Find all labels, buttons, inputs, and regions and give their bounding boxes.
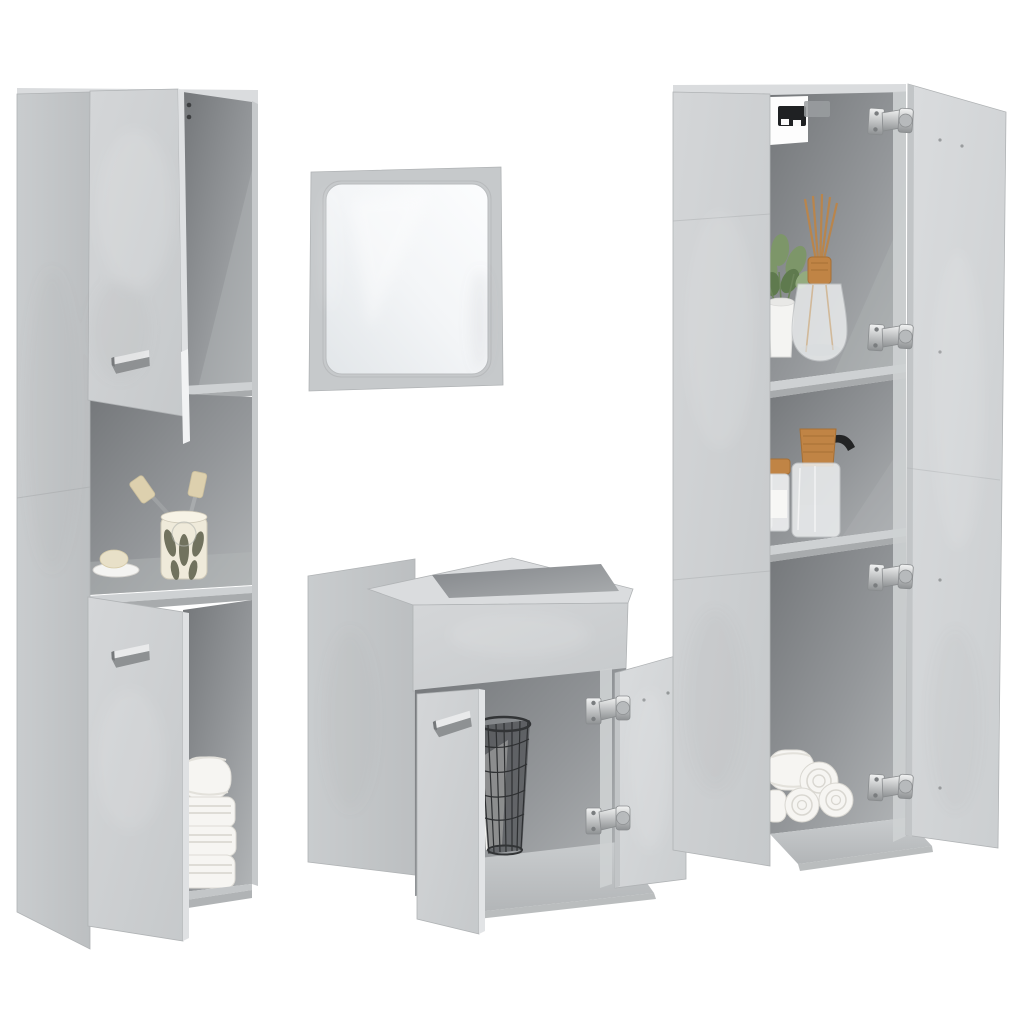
left-cabinet-right-edge (252, 101, 258, 886)
product-photo-canvas (0, 0, 1024, 1024)
wall-mirror (309, 167, 503, 391)
sink-cabinet (308, 558, 686, 934)
tall-cabinet-left (17, 88, 258, 949)
lower-door-edge (183, 612, 189, 941)
sink-left-door-edge (479, 689, 485, 934)
tall-cabinet-right (673, 84, 1006, 871)
plant-pot (768, 302, 794, 357)
dispenser-pump (800, 429, 836, 466)
wire-basket (478, 717, 530, 855)
right-carcass-edge (893, 91, 906, 842)
bathroom-furniture-set-photo (0, 0, 1024, 1024)
